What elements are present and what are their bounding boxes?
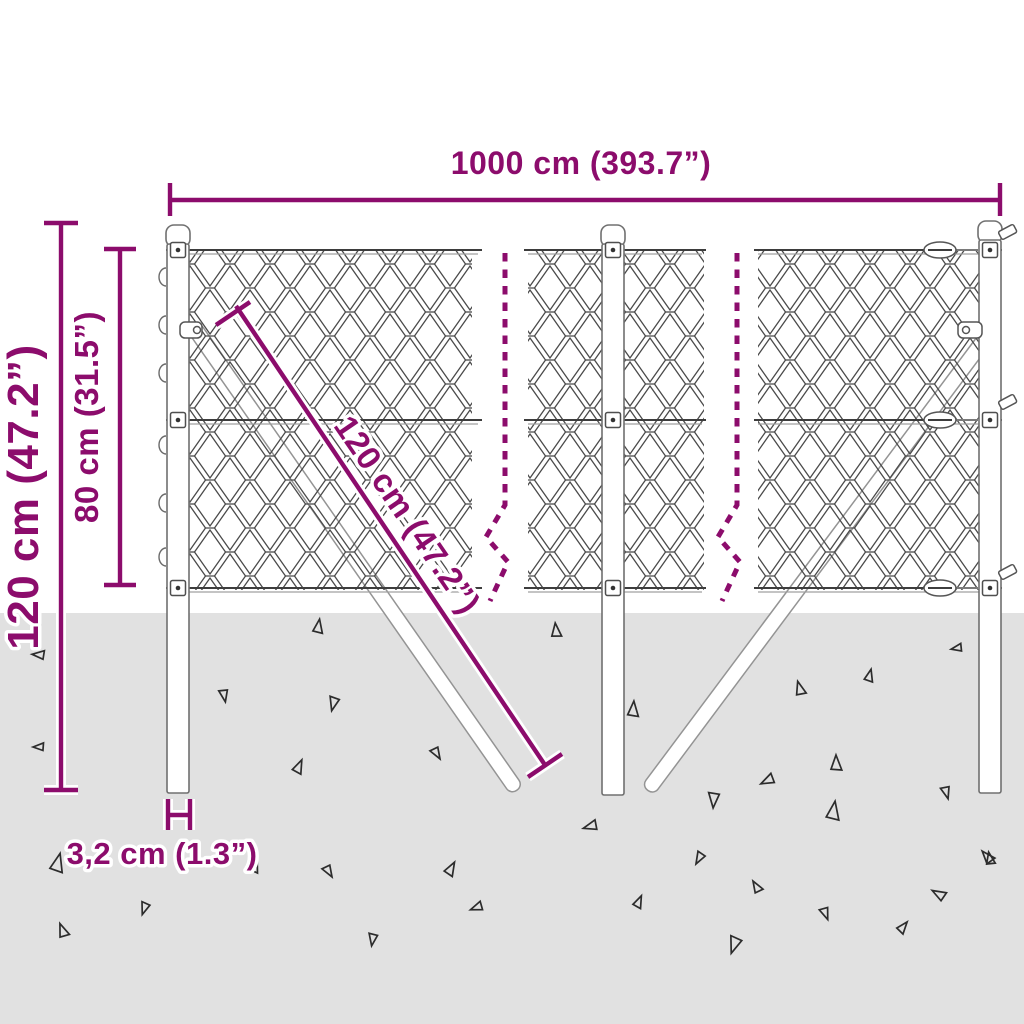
ground bbox=[0, 613, 1024, 1024]
fence-height-label: 80 cm (31.5”) bbox=[68, 311, 105, 523]
brace-bracket-right bbox=[958, 322, 982, 338]
post-right bbox=[978, 221, 1002, 793]
post-diameter-label: 3,2 cm (1.3”) bbox=[67, 836, 258, 871]
total-height-label: 120 cm (47.2”) bbox=[0, 344, 48, 649]
brace-bracket-left bbox=[180, 322, 202, 338]
width-label: 1000 cm (393.7”) bbox=[451, 145, 712, 181]
fence-diagram-canvas: 1000 cm (393.7”) 120 cm (47.2”) 80 cm (3… bbox=[0, 0, 1024, 1024]
post-middle bbox=[601, 225, 625, 795]
product-diagram: 1000 cm (393.7”) 120 cm (47.2”) 80 cm (3… bbox=[0, 0, 1024, 1024]
break-line-right bbox=[718, 253, 740, 601]
break-line-left bbox=[486, 253, 508, 601]
